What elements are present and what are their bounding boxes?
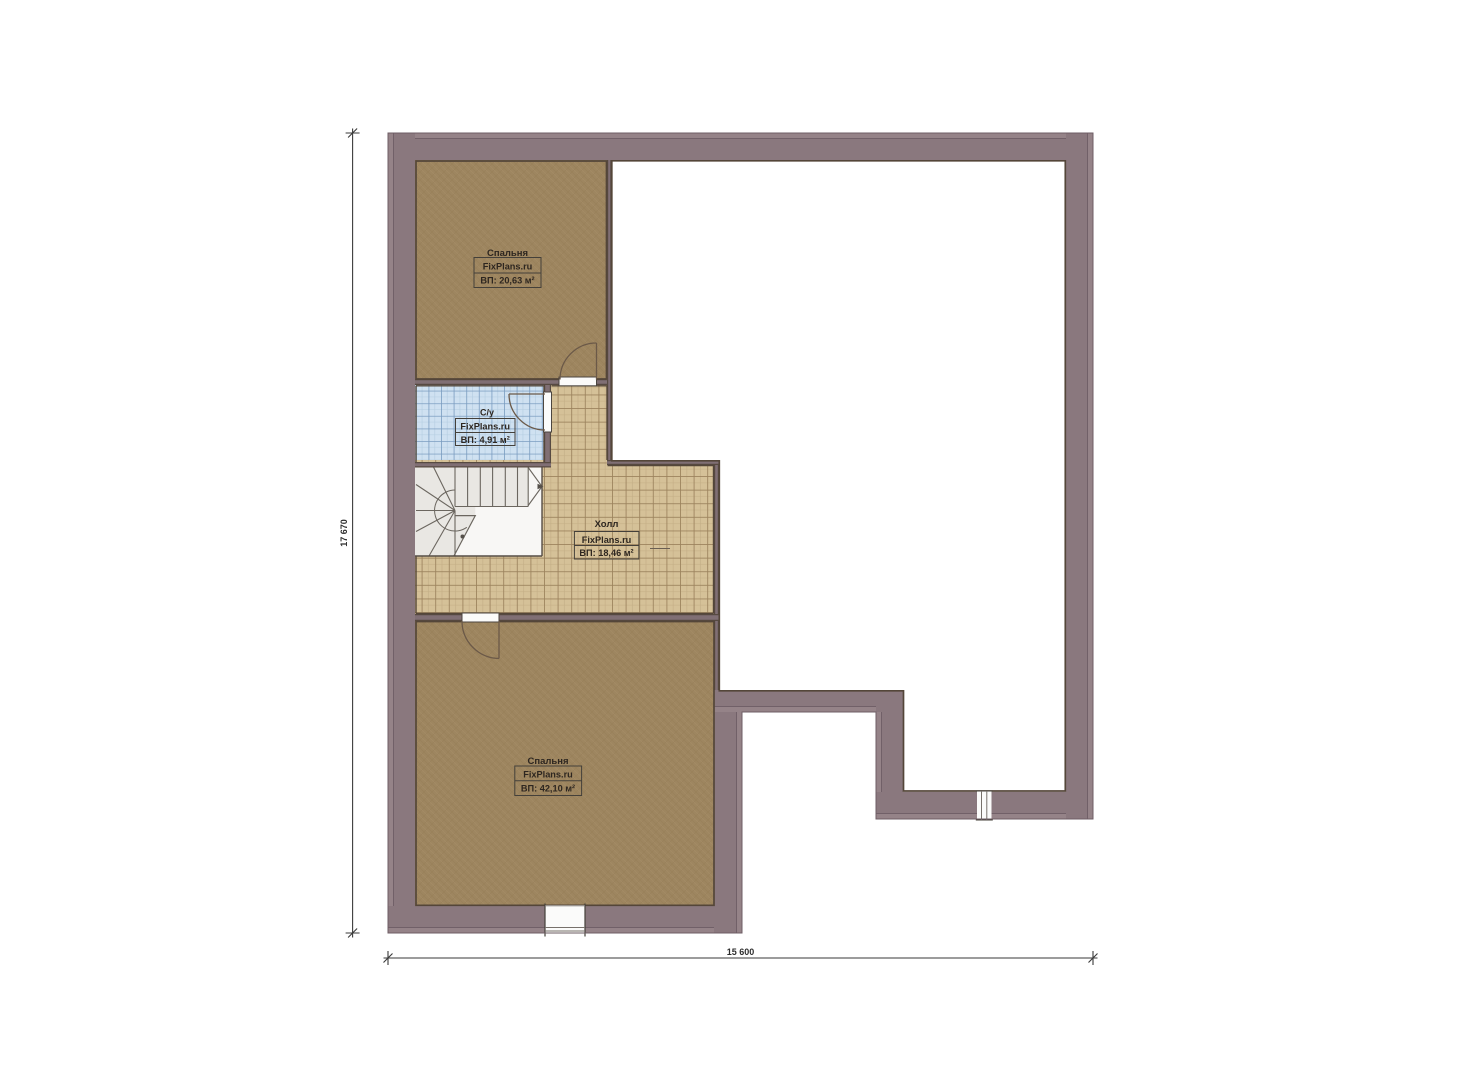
svg-text:Спальня: Спальня <box>527 756 568 767</box>
svg-text:FixPlans.ru: FixPlans.ru <box>582 535 632 545</box>
svg-text:ВП: 20,63 м²: ВП: 20,63 м² <box>480 276 534 286</box>
svg-text:15 600: 15 600 <box>727 947 755 957</box>
svg-text:ВП: 42,10 м²: ВП: 42,10 м² <box>521 784 575 794</box>
svg-text:FixPlans.ru: FixPlans.ru <box>483 262 533 272</box>
svg-text:FixPlans.ru: FixPlans.ru <box>523 770 573 780</box>
svg-text:Холл: Холл <box>595 519 619 530</box>
svg-text:FixPlans.ru: FixPlans.ru <box>460 422 510 432</box>
svg-text:17 670: 17 670 <box>339 519 349 547</box>
svg-text:ВП: 4,91 м²: ВП: 4,91 м² <box>461 435 510 445</box>
svg-text:С/у: С/у <box>480 408 494 418</box>
svg-text:ВП: 18,46 м²: ВП: 18,46 м² <box>579 548 633 558</box>
